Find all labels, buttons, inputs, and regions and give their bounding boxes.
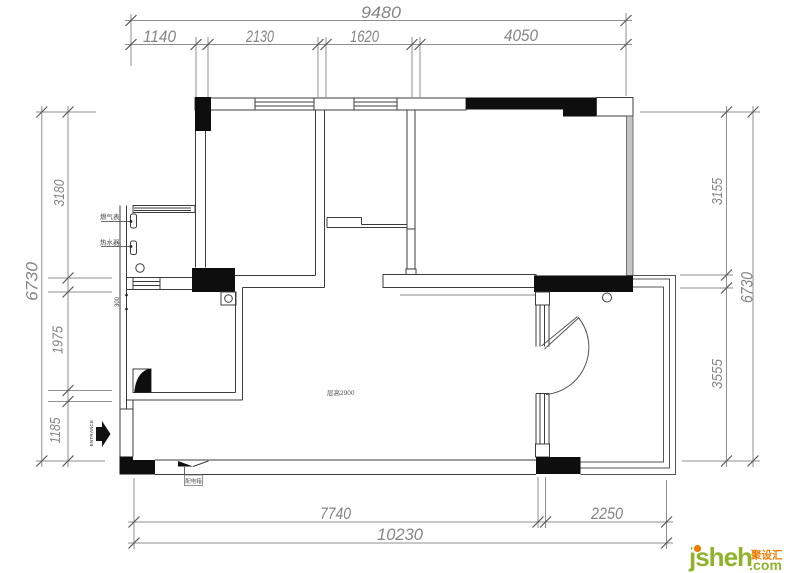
svg-text:1140: 1140 xyxy=(143,27,176,46)
svg-text:4050: 4050 xyxy=(504,26,538,45)
svg-text:1185: 1185 xyxy=(47,417,64,444)
svg-text:3555: 3555 xyxy=(709,358,726,389)
svg-text:6730: 6730 xyxy=(23,261,42,301)
svg-text:300: 300 xyxy=(115,296,121,307)
svg-text:1975: 1975 xyxy=(50,325,67,354)
svg-text:3155: 3155 xyxy=(709,177,726,205)
svg-text:6730: 6730 xyxy=(738,272,757,303)
svg-text:.com: .com xyxy=(749,557,782,573)
svg-text:2130: 2130 xyxy=(245,27,274,46)
svg-text:10230: 10230 xyxy=(377,525,424,544)
svg-text:9480: 9480 xyxy=(361,3,402,22)
svg-text:热水器: 热水器 xyxy=(100,238,120,247)
svg-text:ENTRANCE: ENTRANCE xyxy=(89,420,94,446)
svg-text:燃气表: 燃气表 xyxy=(100,212,120,221)
svg-text:配电箱: 配电箱 xyxy=(185,477,202,485)
svg-text:3180: 3180 xyxy=(51,179,68,207)
svg-text:1620: 1620 xyxy=(350,27,379,46)
svg-text:2250: 2250 xyxy=(590,504,623,523)
svg-text:层高2900: 层高2900 xyxy=(327,388,355,397)
svg-text:7740: 7740 xyxy=(320,504,351,523)
